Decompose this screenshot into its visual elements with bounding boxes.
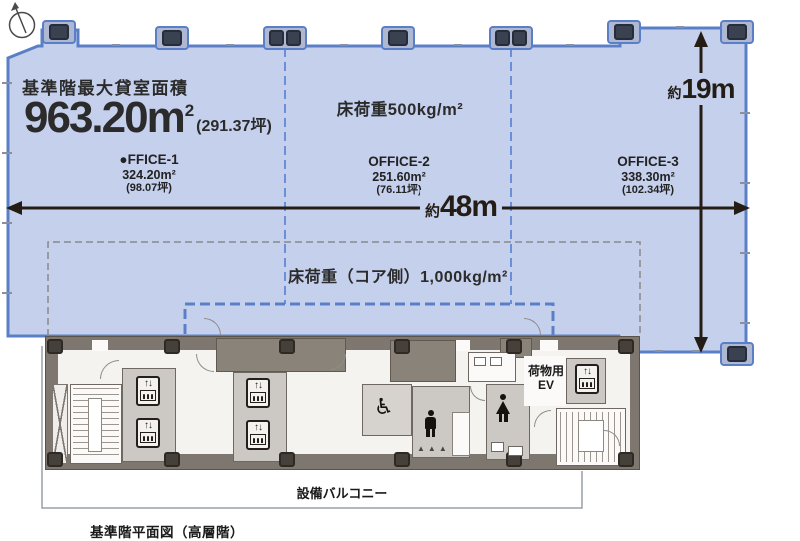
freight-ev-label-line1: 荷物用 bbox=[527, 364, 565, 378]
sink bbox=[490, 357, 502, 366]
sink bbox=[474, 357, 486, 366]
core-column bbox=[164, 339, 180, 354]
office-1-label: ●FFICE-1 324.20m² (98.07坪) bbox=[119, 152, 178, 195]
core-column bbox=[394, 339, 410, 354]
door-gap bbox=[456, 340, 470, 351]
width-dimension-label: 約48m bbox=[420, 190, 502, 224]
core-floor-load-label: 床荷重（コア側）1,000kg/m² bbox=[288, 263, 508, 287]
elevator-cab bbox=[140, 432, 156, 443]
facade-column-double bbox=[489, 26, 533, 50]
elevator-arrows: ↑↓ bbox=[254, 381, 262, 391]
office-floor-load-label: 床荷重500kg/m² bbox=[337, 96, 464, 120]
door-gap bbox=[540, 340, 558, 351]
depth-dimension-label: 約19m bbox=[662, 73, 739, 105]
area-unit-sup: 2 bbox=[185, 101, 194, 121]
stair-landing bbox=[88, 398, 102, 452]
freight-ev-label-line2: EV bbox=[527, 378, 565, 392]
elevator-arrows: ↑↓ bbox=[254, 423, 262, 433]
elevator-cab bbox=[250, 392, 266, 403]
stair-landing bbox=[578, 420, 604, 452]
elevator-icon: ↑↓ bbox=[246, 378, 270, 408]
woman-icon bbox=[496, 394, 510, 422]
facade-column bbox=[42, 20, 76, 44]
fixture bbox=[491, 442, 504, 452]
core-column bbox=[164, 452, 180, 467]
elevator-cab bbox=[579, 378, 595, 389]
elevator-icon: ↑↓ bbox=[136, 376, 160, 406]
elevator-arrows: ↑↓ bbox=[583, 367, 591, 377]
toilet-stalls bbox=[452, 412, 470, 456]
office-1-tsubo: (98.07坪) bbox=[119, 182, 178, 195]
door-gap bbox=[92, 340, 108, 351]
core-column bbox=[618, 339, 634, 354]
wheelchair-icon: ♿ bbox=[374, 396, 394, 418]
office-3-name: OFFICE-3 bbox=[617, 154, 679, 170]
area-tsubo: (291.37坪) bbox=[196, 112, 272, 139]
man-icon bbox=[425, 410, 436, 437]
column-core bbox=[495, 30, 510, 46]
office-3-area: 338.30m² bbox=[617, 170, 679, 184]
column-core bbox=[286, 30, 301, 46]
office-2-name: OFFICE-2 bbox=[368, 154, 430, 170]
facade-column bbox=[607, 20, 641, 44]
facade-column bbox=[155, 26, 189, 50]
elevator-arrows: ↑↓ bbox=[144, 379, 152, 389]
core-column bbox=[394, 452, 410, 467]
depth-prefix: 約 bbox=[667, 83, 681, 103]
width-value: 48m bbox=[440, 190, 497, 224]
facade-column bbox=[720, 20, 754, 44]
area-number: 963.20 bbox=[24, 97, 147, 139]
core-column bbox=[47, 339, 63, 354]
office-2-area: 251.60m² bbox=[368, 170, 430, 184]
column-core bbox=[388, 30, 408, 46]
column-core bbox=[512, 30, 527, 46]
elevator-icon: ↑↓ bbox=[136, 418, 160, 448]
floor-plan: ↑↓ ↑↓ ↑↓ ↑↓ ♿ ▲▲▲ ↑↓ 荷物用 EV bbox=[0, 0, 800, 541]
elevator-arrows: ↑↓ bbox=[144, 421, 152, 431]
column-core bbox=[614, 24, 634, 40]
office-3-tsubo: (102.34坪) bbox=[617, 184, 679, 197]
north-compass-icon bbox=[10, 2, 35, 38]
core-column bbox=[47, 452, 63, 467]
column-core bbox=[269, 30, 284, 46]
elevator-icon: ↑↓ bbox=[246, 420, 270, 450]
facade-column-double bbox=[263, 26, 307, 50]
drawing-caption: 基準階平面図（高層階） bbox=[90, 521, 244, 541]
area-unit: m bbox=[147, 97, 184, 139]
core-column bbox=[618, 452, 634, 467]
column-core bbox=[727, 346, 747, 362]
elevator-cab bbox=[250, 434, 266, 445]
core-column bbox=[279, 452, 295, 467]
core-column bbox=[279, 339, 295, 354]
office-1-area: 324.20m² bbox=[119, 168, 178, 182]
office-3-label: OFFICE-3 338.30m² (102.34坪) bbox=[617, 154, 679, 197]
facade-column bbox=[381, 26, 415, 50]
depth-value: 19m bbox=[681, 73, 734, 105]
column-core bbox=[727, 24, 747, 40]
freight-ev-label: 荷物用 EV bbox=[527, 364, 565, 393]
max-area-value: 963.20m2(291.37坪) bbox=[24, 97, 272, 139]
urinal-row-icon: ▲▲▲ bbox=[417, 444, 450, 453]
office-1-name: ●FFICE-1 bbox=[119, 152, 178, 168]
fixture bbox=[508, 446, 523, 456]
freight-elevator-icon: ↑↓ bbox=[575, 364, 599, 394]
facade-column bbox=[720, 342, 754, 366]
core-column bbox=[506, 339, 522, 354]
column-core bbox=[162, 30, 182, 46]
elevator-cab bbox=[140, 390, 156, 401]
balcony-label: 設備バルコニー bbox=[297, 483, 388, 502]
column-core bbox=[49, 24, 69, 40]
width-prefix: 約 bbox=[425, 200, 440, 221]
